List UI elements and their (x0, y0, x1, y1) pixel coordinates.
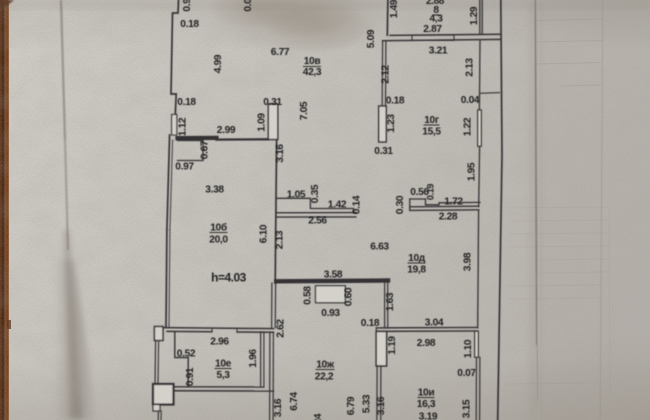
svg-text:1.96: 1.96 (248, 349, 259, 368)
svg-text:5.09: 5.09 (366, 29, 377, 48)
svg-text:3.16: 3.16 (376, 396, 387, 415)
svg-text:19,8: 19,8 (407, 265, 426, 276)
svg-text:0.18: 0.18 (180, 19, 199, 30)
svg-text:3.16: 3.16 (273, 398, 284, 417)
svg-text:42,3: 42,3 (303, 67, 322, 78)
svg-text:16,3: 16,3 (417, 399, 436, 410)
svg-text:2.98: 2.98 (417, 338, 436, 349)
svg-text:10и: 10и (418, 388, 435, 399)
svg-text:0.58: 0.58 (303, 286, 314, 305)
svg-text:0.97: 0.97 (175, 162, 194, 173)
svg-text:0.52: 0.52 (177, 349, 196, 360)
svg-text:1.10: 1.10 (463, 339, 474, 358)
svg-text:5,3: 5,3 (216, 370, 230, 381)
svg-text:0.07: 0.07 (457, 368, 476, 379)
svg-text:1.95: 1.95 (467, 162, 478, 181)
svg-text:1.29: 1.29 (469, 6, 480, 25)
svg-text:4,3: 4,3 (429, 14, 443, 25)
svg-text:0.18: 0.18 (386, 96, 405, 107)
svg-text:3.98: 3.98 (463, 252, 474, 271)
svg-text:3.15: 3.15 (462, 399, 473, 418)
svg-text:4.99: 4.99 (213, 54, 224, 73)
svg-text:0.91: 0.91 (185, 367, 196, 386)
svg-text:3.19: 3.19 (419, 412, 438, 420)
svg-text:0.60: 0.60 (344, 287, 355, 306)
svg-text:0.35: 0.35 (310, 184, 321, 203)
svg-text:0.18: 0.18 (361, 318, 380, 329)
svg-text:3.04: 3.04 (425, 318, 444, 329)
svg-text:22,2: 22,2 (315, 372, 334, 383)
svg-text:6.77: 6.77 (271, 47, 290, 58)
svg-text:10г: 10г (424, 115, 439, 126)
svg-text:2.13: 2.13 (275, 230, 286, 249)
svg-text:0.31: 0.31 (263, 97, 282, 108)
svg-text:1.42: 1.42 (328, 200, 347, 211)
svg-text:0.9: 0.9 (182, 0, 193, 12)
svg-text:5.33: 5.33 (362, 394, 373, 413)
svg-text:3.38: 3.38 (205, 185, 224, 196)
svg-text:2.56: 2.56 (308, 216, 327, 227)
svg-text:10д: 10д (408, 253, 426, 264)
svg-text:1.05: 1.05 (287, 190, 306, 201)
svg-text:0.19: 0.19 (426, 184, 436, 200)
svg-text:2.99: 2.99 (217, 125, 236, 136)
svg-text:1.12: 1.12 (178, 117, 189, 136)
svg-text:20,0: 20,0 (209, 235, 228, 246)
svg-text:1.22: 1.22 (463, 117, 474, 136)
svg-text:1.72: 1.72 (444, 197, 463, 208)
svg-text:10б: 10б (210, 222, 227, 234)
svg-text:1.49: 1.49 (389, 0, 400, 18)
svg-text:1.09: 1.09 (257, 113, 268, 132)
svg-text:2.28: 2.28 (439, 212, 458, 223)
svg-text:0.14: 0.14 (352, 195, 363, 214)
svg-text:3.58: 3.58 (324, 270, 343, 281)
svg-text:6.63: 6.63 (370, 242, 389, 253)
svg-text:0.0: 0.0 (243, 0, 254, 12)
svg-text:2.96: 2.96 (210, 337, 229, 348)
svg-text:2.62: 2.62 (276, 319, 287, 338)
svg-text:0.04: 0.04 (461, 95, 480, 106)
svg-text:3.24: 3.24 (313, 413, 324, 420)
svg-text:6.74: 6.74 (289, 392, 300, 411)
svg-text:0.18: 0.18 (177, 97, 196, 108)
svg-text:3.21: 3.21 (429, 46, 448, 57)
svg-text:15,5: 15,5 (422, 127, 441, 138)
svg-text:10е: 10е (215, 359, 232, 370)
svg-text:1.63: 1.63 (385, 292, 396, 311)
svg-text:10ж: 10ж (316, 360, 335, 371)
svg-text:1.19: 1.19 (387, 336, 398, 355)
svg-text:0.93: 0.93 (321, 308, 340, 319)
svg-text:6.79: 6.79 (346, 396, 357, 415)
svg-text:7.05: 7.05 (299, 101, 310, 120)
svg-text:2.13: 2.13 (465, 58, 476, 77)
svg-text:0.31: 0.31 (374, 146, 393, 157)
svg-text:1.23: 1.23 (386, 114, 397, 133)
svg-text:h=4.03: h=4.03 (211, 271, 247, 285)
svg-text:0.30: 0.30 (395, 195, 406, 214)
svg-text:10в: 10в (304, 56, 321, 67)
svg-text:3.16: 3.16 (275, 144, 286, 163)
svg-text:2.87: 2.87 (423, 24, 442, 35)
svg-text:2.12: 2.12 (381, 65, 392, 84)
svg-text:0.67: 0.67 (200, 140, 211, 159)
svg-text:6.10: 6.10 (259, 224, 270, 243)
